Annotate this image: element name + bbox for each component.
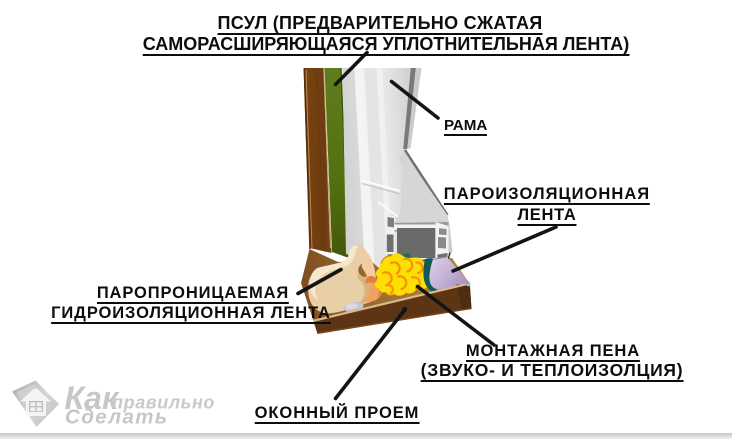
svg-text:Сделать: Сделать xyxy=(65,406,168,429)
